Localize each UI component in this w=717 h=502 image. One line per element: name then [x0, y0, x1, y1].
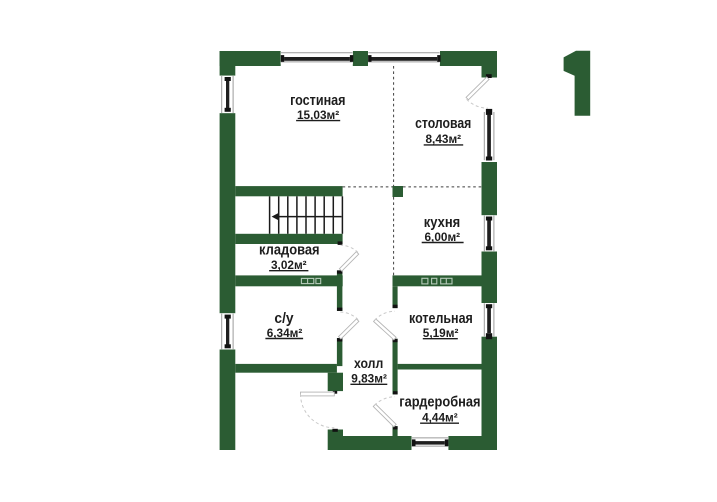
svg-text:гостиная: гостиная — [290, 93, 345, 109]
svg-text:15,03м²: 15,03м² — [297, 108, 339, 122]
svg-text:6,34м²: 6,34м² — [267, 326, 303, 340]
svg-text:5,19м²: 5,19м² — [423, 326, 459, 340]
svg-text:кладовая: кладовая — [259, 243, 320, 259]
svg-text:6,00м²: 6,00м² — [424, 230, 460, 244]
svg-text:столовая: столовая — [415, 116, 471, 132]
svg-text:холл: холл — [354, 355, 383, 371]
svg-text:4,44м²: 4,44м² — [422, 411, 458, 425]
svg-text:котельная: котельная — [409, 311, 473, 327]
svg-text:3,02м²: 3,02м² — [271, 258, 307, 272]
svg-text:с/у: с/у — [274, 311, 294, 327]
svg-text:9,83м²: 9,83м² — [351, 372, 387, 386]
svg-text:гардеробная: гардеробная — [399, 394, 480, 410]
svg-text:8,43м²: 8,43м² — [425, 132, 461, 146]
svg-text:кухня: кухня — [424, 215, 460, 231]
